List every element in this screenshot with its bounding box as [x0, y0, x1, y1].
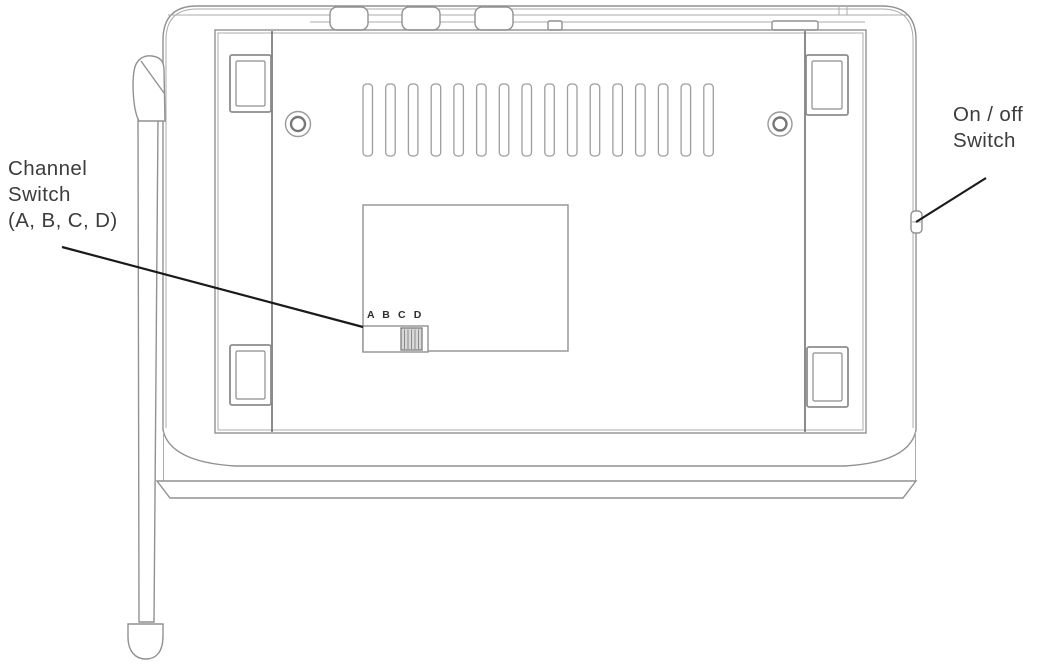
- vent-slot: [590, 84, 600, 156]
- vent-slot: [386, 84, 396, 156]
- on-off-switch-label-line1: On / off: [953, 102, 1023, 128]
- device-body-outline: [163, 6, 916, 466]
- vent-slot: [363, 84, 373, 156]
- vent-slot: [636, 84, 646, 156]
- antenna-shaft: [138, 118, 158, 622]
- channel-switch-label-line1: Channel: [8, 156, 118, 182]
- vent-slot: [613, 84, 623, 156]
- base-strip: [157, 481, 916, 498]
- vent-slot: [681, 84, 691, 156]
- vent-slot: [477, 84, 487, 156]
- on-off-switch-label-line2: Switch: [953, 128, 1023, 154]
- diagram-canvas: Channel Switch (A, B, C, D) On / off Swi…: [0, 0, 1046, 665]
- vent-slot: [568, 84, 578, 156]
- vent-slot: [499, 84, 509, 156]
- vent-slot: [408, 84, 418, 156]
- channel-markings-text: A B C D: [367, 309, 424, 321]
- vent-slot: [704, 84, 714, 156]
- antenna: [128, 56, 165, 659]
- channel-switch-label-line3: (A, B, C, D): [8, 208, 118, 234]
- leader-line-on-off-switch: [916, 178, 986, 222]
- vent-slot: [658, 84, 668, 156]
- vent-slot: [454, 84, 464, 156]
- channel-switch-slider: [401, 328, 422, 350]
- on-off-switch-label: On / off Switch: [953, 102, 1023, 154]
- channel-switch-label: Channel Switch (A, B, C, D): [8, 156, 118, 234]
- top-button-3: [475, 7, 513, 30]
- vent-slot: [522, 84, 532, 156]
- channel-switch-label-line2: Switch: [8, 182, 118, 208]
- antenna-tip: [128, 624, 163, 659]
- top-button-2: [402, 7, 440, 30]
- top-wide-tab: [772, 21, 818, 30]
- device-rear-diagram: [0, 0, 1046, 665]
- top-button-1: [330, 7, 368, 30]
- vent-slot: [545, 84, 555, 156]
- vent-slot: [431, 84, 441, 156]
- top-small-tab: [548, 21, 562, 30]
